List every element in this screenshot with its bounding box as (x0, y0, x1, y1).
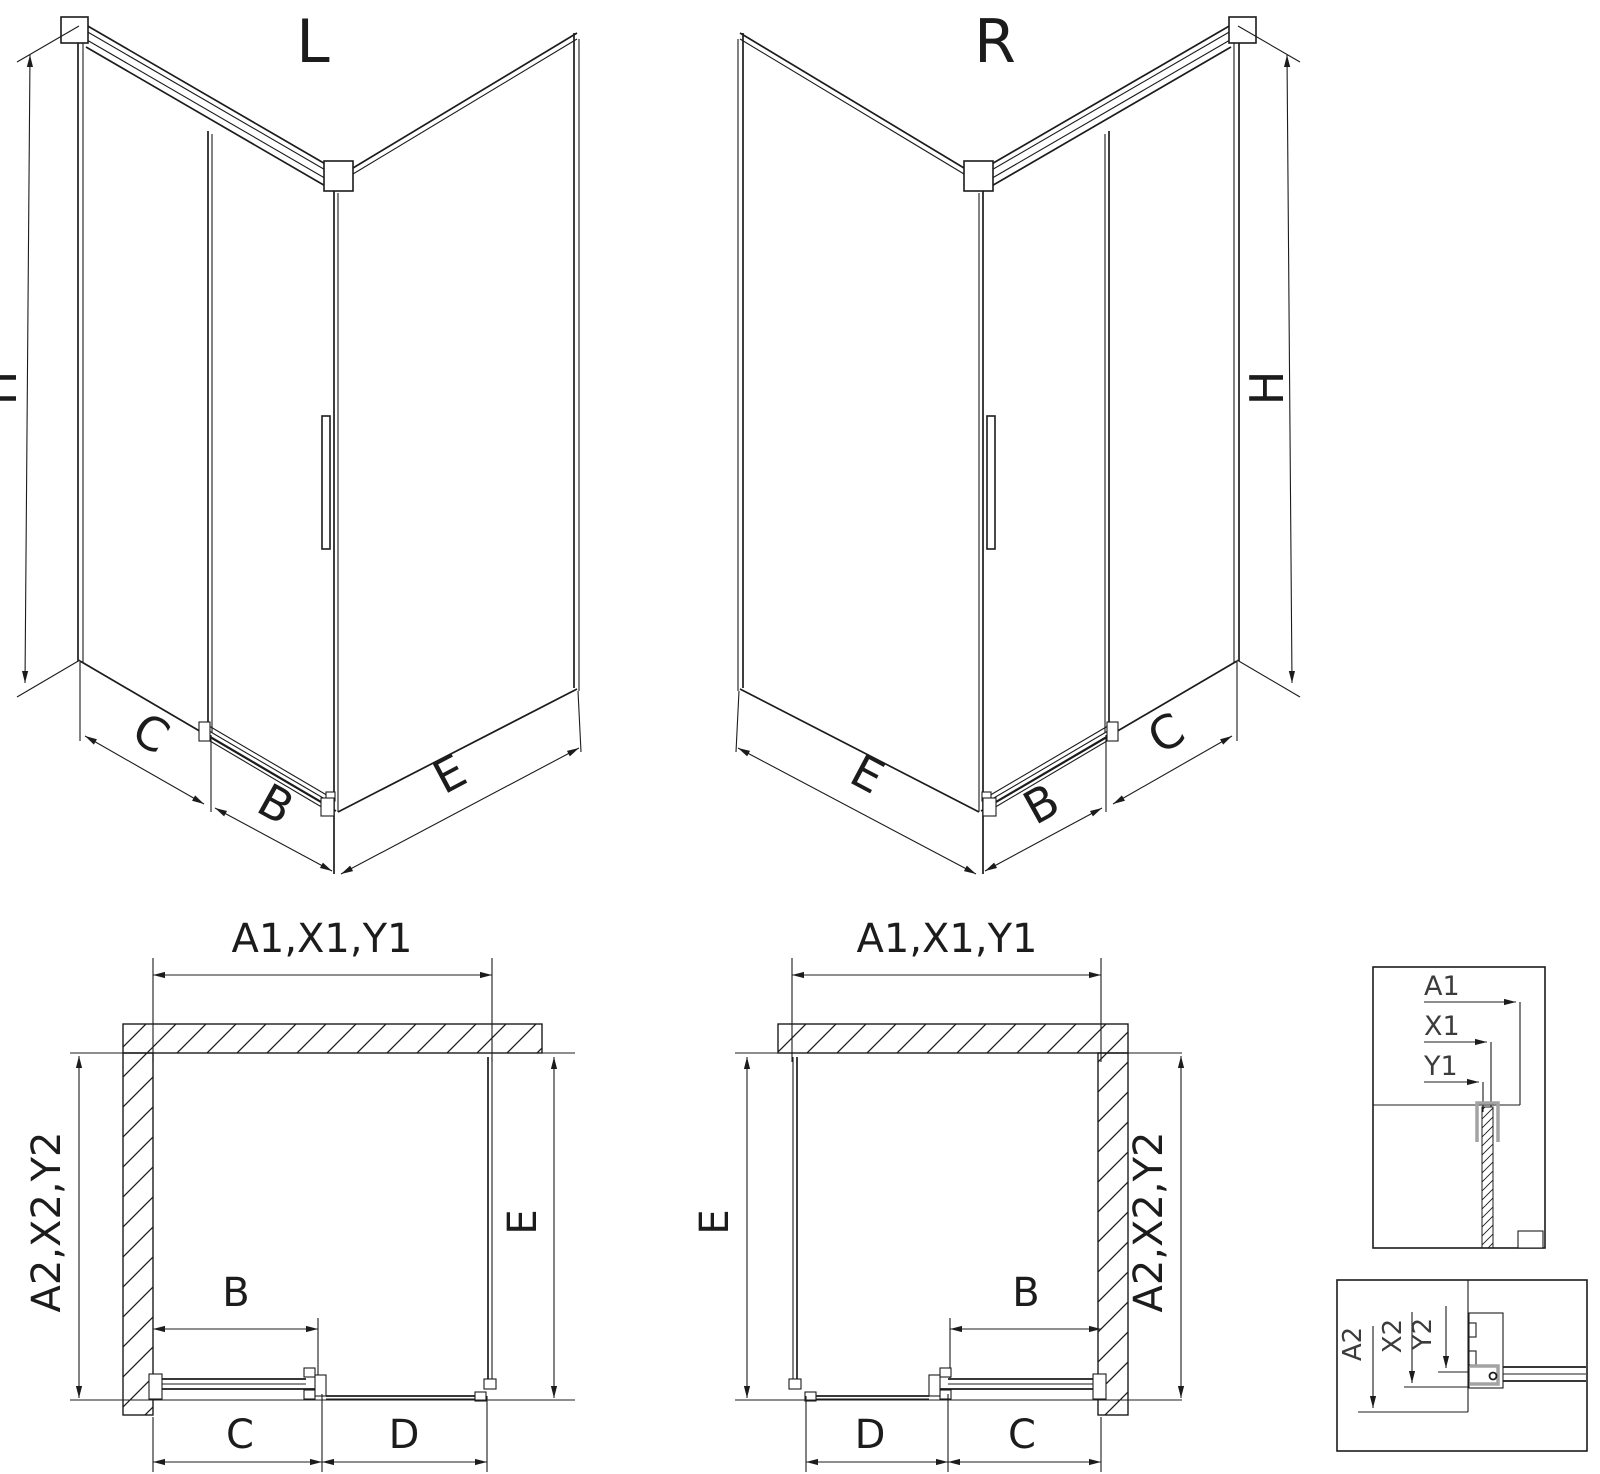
wall-profile (149, 1374, 162, 1399)
dim-label-door-right: B (1014, 773, 1068, 836)
detail-label-x1: X1 (1424, 1011, 1460, 1042)
dim-label-height-right: H (1240, 371, 1294, 406)
track-corner-profile (321, 798, 334, 816)
detail-view-top: A1 X1 Y1 (1373, 967, 1545, 1248)
wall-profile-section (1518, 1231, 1543, 1248)
rail-notch (1469, 1323, 1476, 1337)
rail-notch (1469, 1351, 1476, 1365)
iso-view-right: R H (736, 7, 1300, 874)
corner-cap (324, 161, 353, 191)
track-corner-profile (983, 798, 996, 816)
dim-label-height-left: H (0, 371, 27, 406)
door-handle-knob (940, 1368, 951, 1377)
detail-label-y2: Y2 (1408, 1318, 1438, 1351)
plan-dim-width-left: A1,X1,Y1 (232, 916, 413, 962)
variant-label-right: R (974, 7, 1016, 77)
detail-label-x2: X2 (1378, 1319, 1408, 1353)
wall-profile (1093, 1374, 1106, 1399)
shower-enclosure-diagram: L H (0, 0, 1600, 1474)
door-edge-profile (315, 1375, 326, 1396)
plan-dim-depth-left: A2,X2,Y2 (24, 1132, 70, 1313)
door-handle-knob (304, 1390, 315, 1399)
detail-label-y1: Y1 (1423, 1051, 1458, 1082)
rail-end-cap (1229, 17, 1256, 43)
detail-view-bottom: A2 X2 Y2 (1337, 1280, 1587, 1451)
plan-dim-panel-left: D (389, 1412, 420, 1458)
wall-section-right (1098, 1053, 1128, 1415)
rail-end-cap (61, 17, 88, 43)
dim-label-panel-right: C (1139, 702, 1194, 765)
door-handle (322, 416, 330, 549)
corner-cap (964, 161, 993, 191)
plan-dim-opening-right: C (1008, 1412, 1036, 1458)
plan-dim-door-left: B (222, 1270, 249, 1316)
detail-label-a1: A1 (1424, 971, 1460, 1002)
plan-dim-depth-right: A2,X2,Y2 (1126, 1132, 1172, 1313)
dim-label-side-right: E (842, 743, 893, 804)
plan-view-right: A1,X1,Y1 E A2,X2,Y2 B (692, 916, 1182, 1472)
plan-dim-width-right: A1,X1,Y1 (857, 916, 1038, 962)
plan-dim-door-right: B (1012, 1270, 1039, 1316)
variant-label-left: L (296, 7, 330, 77)
wall-section-top (778, 1024, 1128, 1053)
track-end-profile (199, 722, 210, 741)
door-edge-profile (929, 1375, 940, 1396)
dim-label-door-left: B (249, 773, 303, 836)
plan-dim-side-right: E (692, 1209, 738, 1234)
glass-end-cap (484, 1379, 496, 1389)
dim-label-panel-left: C (124, 702, 179, 765)
wall-section-left (123, 1053, 153, 1415)
track-end-profile (1107, 722, 1118, 741)
plan-view-left: A1,X1,Y1 E A2,X2,Y2 B (24, 916, 575, 1472)
detail-label-a2: A2 (1338, 1327, 1368, 1361)
door-handle-knob (940, 1390, 951, 1399)
glass-end-cap (789, 1379, 801, 1389)
iso-view-left: L H (0, 7, 581, 874)
dim-label-side-left: E (424, 743, 475, 804)
technical-drawing-page: L H (0, 0, 1600, 1474)
glass-section (1482, 1107, 1493, 1248)
plan-dim-opening-left: C (226, 1412, 254, 1458)
door-handle (987, 416, 995, 549)
roller-section (1490, 1373, 1497, 1380)
wall-section-top (123, 1024, 542, 1053)
plan-dim-panel-right: D (855, 1412, 886, 1458)
plan-dim-side-left: E (500, 1209, 546, 1234)
door-handle-knob (304, 1368, 315, 1377)
